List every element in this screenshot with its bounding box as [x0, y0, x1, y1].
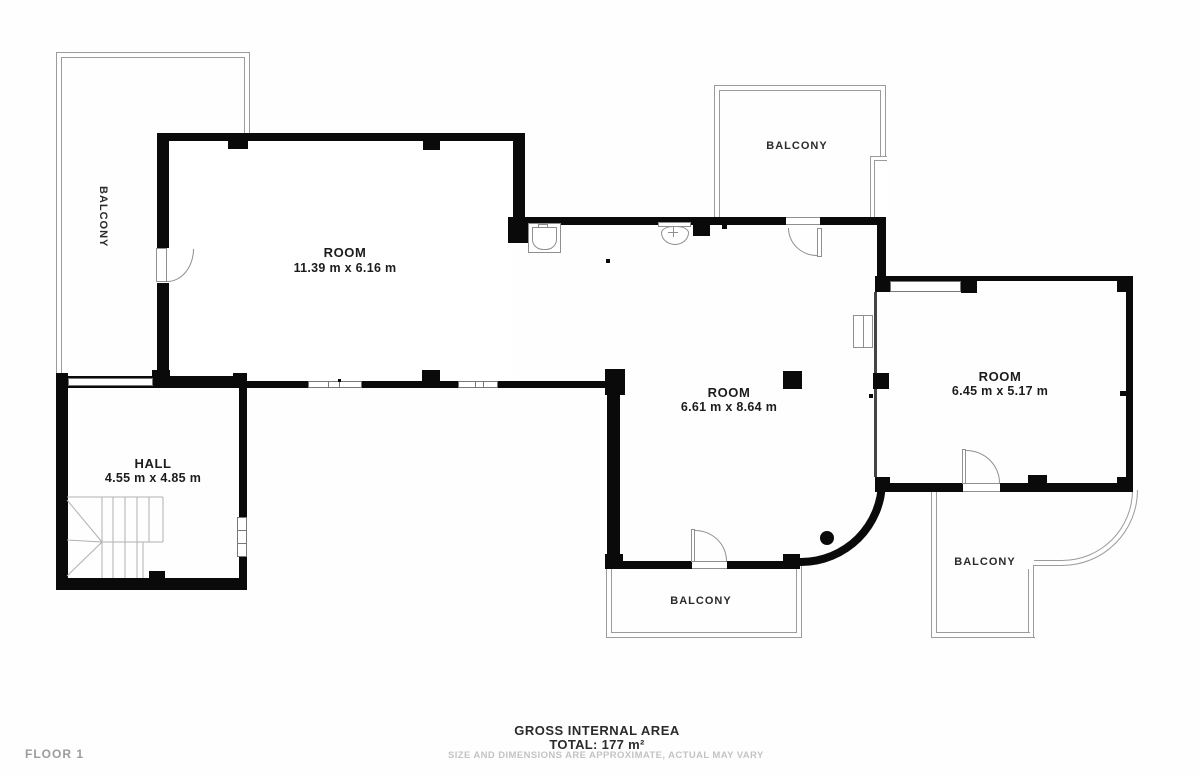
footer-gross-area-title: GROSS INTERNAL AREA: [447, 723, 747, 738]
hall-dims: 4.55 m x 4.85 m: [53, 471, 253, 485]
room-2-dims: 6.61 m x 8.64 m: [629, 400, 829, 414]
balcony-bottomright-label: BALCONY: [905, 556, 1065, 568]
balcony-bottomcenter-label: BALCONY: [621, 595, 781, 607]
room-1-label: ROOM: [245, 245, 445, 260]
room-3-label: ROOM: [900, 369, 1100, 384]
room-1-dims: 11.39 m x 6.16 m: [245, 261, 445, 275]
balcony-topright-label: BALCONY: [722, 140, 872, 152]
balcony-left-label: BALCONY: [97, 186, 109, 246]
room-2-label: ROOM: [629, 385, 829, 400]
floor-number-label: FLOOR 1: [25, 747, 84, 761]
footer-disclaimer: SIZE AND DIMENSIONS ARE APPROXIMATE, ACT…: [448, 750, 748, 761]
room-3-dims: 6.45 m x 5.17 m: [900, 384, 1100, 398]
hall-label: HALL: [53, 456, 253, 471]
floor-plan: ROOM 11.39 m x 6.16 m ROOM 6.61 m x 8.64…: [0, 0, 1200, 776]
